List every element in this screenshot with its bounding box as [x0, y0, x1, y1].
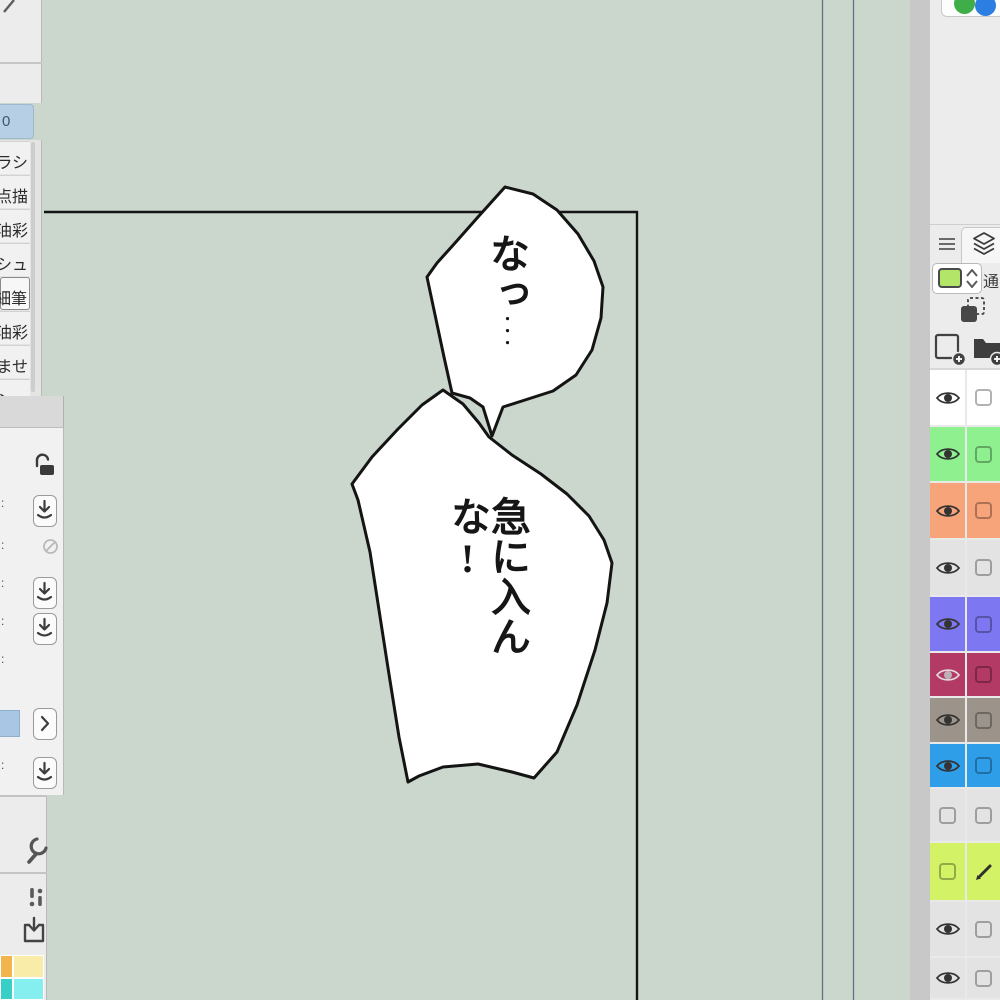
- property-label-fragment: :: [1, 758, 4, 772]
- layer-visibility-eye-icon: [935, 616, 961, 632]
- slider-indicator-button[interactable]: [33, 757, 57, 789]
- left-toolbar-bottom-section: [0, 795, 47, 1000]
- subtool-list: ラシ点描油彩シュ細筆油彩ませシュ: [0, 140, 42, 396]
- property-label-fragment: :: [1, 538, 4, 552]
- layer-visibility-cell[interactable]: [930, 698, 967, 742]
- layer-row[interactable]: [930, 843, 1000, 902]
- layer-row[interactable]: [930, 427, 1000, 483]
- toolbar-divider: [0, 872, 47, 874]
- layer-select-cell[interactable]: [967, 427, 1000, 481]
- disabled-indicator-icon: [42, 538, 59, 555]
- toolbar-divider: [0, 795, 47, 797]
- subtool-label: シュ: [0, 251, 28, 275]
- subtool-label: 細筆: [0, 285, 27, 309]
- import-download-icon[interactable]: [21, 914, 47, 952]
- layer-visibility-cell[interactable]: [930, 902, 967, 956]
- bubble1-ellipsis-dots: ・・・: [500, 312, 513, 372]
- layer-select-cell[interactable]: [967, 958, 1000, 998]
- layer-row[interactable]: [930, 540, 1000, 597]
- subtool-item[interactable]: ラシ: [0, 141, 30, 174]
- layer-row[interactable]: [930, 653, 1000, 698]
- layer-select-cell[interactable]: [967, 653, 1000, 696]
- new-folder-icon[interactable]: [972, 332, 1000, 367]
- subtool-label: ラシ: [0, 149, 28, 173]
- layer-visibility-eye-icon: [935, 446, 961, 462]
- layer-visibility-cell[interactable]: [930, 653, 967, 696]
- layer-select-cell[interactable]: [967, 698, 1000, 742]
- property-label-fragment: :: [1, 496, 4, 510]
- unlock-icon[interactable]: [31, 452, 58, 478]
- layer-select-cell[interactable]: [967, 483, 1000, 538]
- primary-color-circle[interactable]: [954, 0, 975, 14]
- layer-visibility-eye-icon: [935, 560, 961, 576]
- layers-panel-tabbar: [930, 225, 1000, 262]
- subtool-group-tab-selected[interactable]: 0: [0, 104, 34, 139]
- subtool-label: ませ: [0, 353, 28, 377]
- layer-visibility-cell[interactable]: [930, 744, 967, 787]
- subtool-label: 油彩: [0, 319, 28, 343]
- layer-checkbox[interactable]: [975, 389, 992, 406]
- layer-visibility-cell[interactable]: [930, 789, 967, 841]
- pen-tool-icon[interactable]: [1, 0, 21, 14]
- layer-visibility-cell[interactable]: [930, 843, 967, 900]
- layer-row[interactable]: [930, 789, 1000, 843]
- layers-panel: 通: [930, 0, 1000, 1000]
- subtool-item[interactable]: ませ: [0, 345, 30, 378]
- layer-visibility-checkbox-off[interactable]: [939, 807, 956, 824]
- layer-checkbox[interactable]: [975, 446, 992, 463]
- color-swatch[interactable]: [13, 978, 44, 1000]
- layer-row[interactable]: [930, 744, 1000, 789]
- layer-visibility-eye-icon: [935, 390, 961, 406]
- color-swatch[interactable]: [0, 978, 13, 1000]
- drawing-canvas[interactable]: なっ ・・・ 急に入んな!: [0, 0, 910, 1000]
- layer-row[interactable]: [930, 370, 1000, 427]
- layer-checkbox[interactable]: [975, 970, 992, 987]
- expand-button[interactable]: [33, 708, 57, 740]
- layer-select-cell[interactable]: [967, 597, 1000, 651]
- layer-row[interactable]: [930, 902, 1000, 958]
- subtool-group-label: 0: [2, 113, 10, 130]
- layer-color-selector[interactable]: [932, 263, 982, 294]
- subtool-item[interactable]: 油彩: [0, 311, 30, 344]
- layer-visibility-eye-icon: [935, 758, 961, 774]
- layer-checkbox[interactable]: [975, 712, 992, 729]
- layer-checkbox[interactable]: [975, 616, 992, 633]
- layer-visibility-eye-icon: [935, 712, 961, 728]
- layer-checkbox[interactable]: [975, 807, 992, 824]
- tab-layers[interactable]: [961, 227, 1000, 263]
- subtool-item[interactable]: シュ: [0, 243, 30, 276]
- toolbar-divider: [0, 62, 42, 64]
- property-label-fragment: :: [1, 576, 4, 590]
- subtool-item[interactable]: 点描: [0, 175, 30, 208]
- panel-gutter: [910, 0, 930, 1000]
- layer-visibility-cell[interactable]: [930, 370, 967, 425]
- slider-indicator-button[interactable]: [33, 613, 57, 645]
- layer-select-cell[interactable]: [967, 744, 1000, 787]
- layer-checkbox[interactable]: [975, 757, 992, 774]
- slider-indicator-button[interactable]: [33, 577, 57, 609]
- duplicate-layer-icon[interactable]: [958, 296, 988, 326]
- layer-select-cell[interactable]: [967, 843, 1000, 900]
- layer-checkbox[interactable]: [975, 921, 992, 938]
- layers-stack-icon: [971, 231, 997, 259]
- subtool-item-selected[interactable]: 細筆: [0, 277, 30, 310]
- tool-property-panel: : : : : : :: [0, 428, 64, 795]
- layer-visibility-eye-icon: [935, 921, 961, 937]
- layer-visibility-cell[interactable]: [930, 540, 967, 595]
- stepper-chevrons-icon[interactable]: [964, 267, 980, 291]
- wrench-settings-icon[interactable]: [22, 836, 50, 870]
- layer-color-swatch: [938, 268, 962, 288]
- slider-track-fragment[interactable]: [0, 710, 20, 737]
- panel-menu-icon[interactable]: [938, 237, 956, 251]
- subtool-label: 点描: [0, 183, 28, 207]
- layer-list: [930, 370, 1000, 1000]
- subtool-item[interactable]: シュ: [0, 379, 30, 396]
- layer-visibility-eye-icon: [935, 970, 961, 986]
- layer-checkbox[interactable]: [975, 559, 992, 576]
- new-layer-icon[interactable]: [933, 332, 967, 367]
- layer-checkbox[interactable]: [975, 502, 992, 519]
- subtool-item[interactable]: 油彩: [0, 209, 30, 242]
- sliders-toggle-icon[interactable]: [27, 885, 45, 911]
- layer-visibility-cell[interactable]: [930, 483, 967, 538]
- bubble2-dialogue-text: 急に入んな!: [447, 496, 527, 726]
- subtool-list-scrollbar[interactable]: [31, 142, 35, 392]
- color-indicator-widget[interactable]: [941, 0, 1000, 17]
- layer-visibility-cell[interactable]: [930, 427, 967, 481]
- subtool-label: シュ: [0, 387, 28, 396]
- color-swatch[interactable]: [0, 955, 13, 978]
- layer-visibility-checkbox-off[interactable]: [939, 863, 956, 880]
- slider-indicator-button[interactable]: [33, 495, 57, 527]
- tool-property-header: [0, 396, 64, 428]
- layer-visibility-eye-icon: [935, 503, 961, 519]
- edit-pencil-icon: [974, 862, 994, 882]
- layer-visibility-cell[interactable]: [930, 597, 967, 651]
- secondary-color-circle[interactable]: [975, 0, 996, 16]
- subtool-label: 油彩: [0, 217, 28, 241]
- layer-visibility-cell[interactable]: [930, 958, 967, 998]
- layer-row[interactable]: [930, 958, 1000, 1000]
- paint-app-window: { "window": { "canvas_color": "#cbd7cc" …: [0, 0, 1000, 1000]
- layer-row[interactable]: [930, 597, 1000, 653]
- layer-row[interactable]: [930, 698, 1000, 744]
- left-toolbar-top-section: [0, 0, 42, 103]
- color-swatch[interactable]: [13, 955, 44, 978]
- layer-row[interactable]: [930, 483, 1000, 540]
- property-label-fragment: :: [1, 652, 4, 666]
- blend-mode-label-fragment: 通: [983, 268, 999, 292]
- layer-visibility-eye-icon: [935, 667, 961, 683]
- layer-checkbox[interactable]: [975, 666, 992, 683]
- layer-select-cell[interactable]: [967, 540, 1000, 595]
- property-label-fragment: :: [1, 614, 4, 628]
- layer-select-cell[interactable]: [967, 902, 1000, 956]
- layer-select-cell[interactable]: [967, 370, 1000, 425]
- layer-select-cell[interactable]: [967, 789, 1000, 841]
